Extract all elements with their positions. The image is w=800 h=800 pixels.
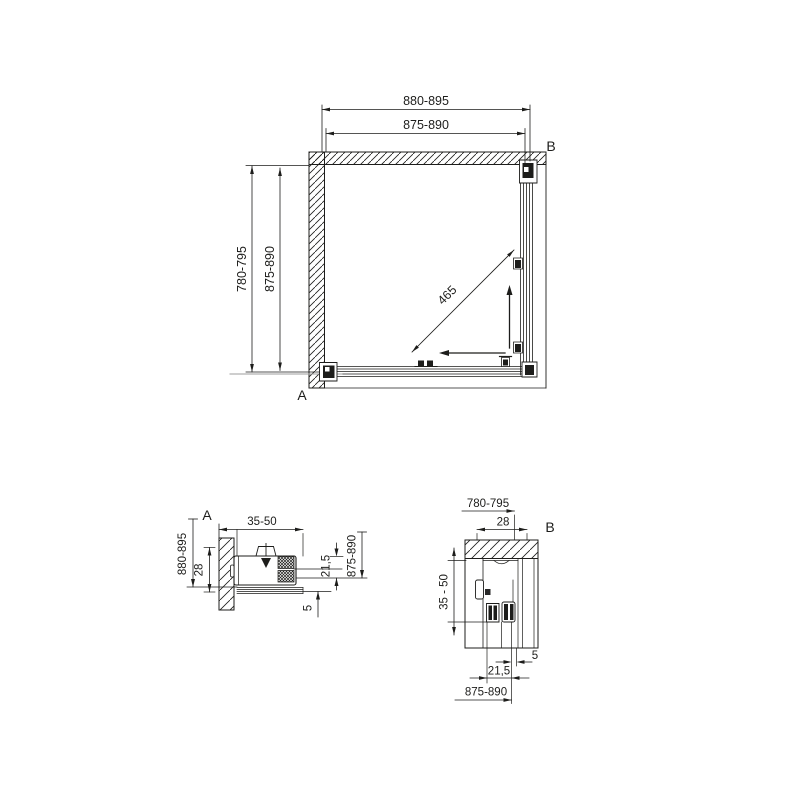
motion-arrow-left-head: [439, 350, 449, 356]
seal-block-lower: [278, 571, 294, 583]
wall-bracket-b: [520, 160, 538, 183]
dim-plan-depth-inner: 875-890: [263, 246, 277, 292]
bottom-door-track: [337, 367, 522, 377]
plan-walls: [309, 152, 546, 388]
plan-view: 880-895 875-890 780-795 875-890 465 A B: [230, 94, 556, 403]
detail-b-wall: [465, 540, 538, 559]
motion-arrow-up-head: [507, 285, 513, 295]
dim-detail-b-left: 35 - 50: [439, 574, 451, 610]
seal-block-upper: [278, 557, 294, 569]
plan-dimensions: [246, 105, 530, 372]
dim-detail-b-top-inner: 28: [497, 517, 510, 529]
dim-plan-diagonal: 465: [435, 283, 460, 308]
label-detail-a: A: [202, 507, 212, 523]
corner-connector: [522, 362, 537, 377]
dim-plan-depth-outer: 780-795: [235, 246, 249, 292]
detail-a-view: A: [177, 507, 367, 617]
detail-b-knob: [476, 580, 491, 599]
dim-detail-a-bottom: 5: [303, 605, 315, 611]
dim-detail-b-bottom-outer: 875-890: [465, 687, 507, 699]
label-detail-b: B: [545, 519, 554, 535]
dim-detail-a-left-inner: 28: [194, 564, 206, 577]
dim-detail-a-right-inner: 21,5: [321, 555, 333, 577]
dim-plan-width-outer: 880-895: [403, 94, 449, 108]
label-plan-b: B: [546, 138, 555, 154]
dim-detail-a-right-outer: 875-890: [347, 535, 359, 577]
dim-detail-b-top-outer: 780-795: [467, 498, 509, 510]
top-wall-hatched: [309, 152, 546, 165]
door-rollers-right: [514, 258, 523, 353]
dim-plan-width-inner: 875-890: [403, 118, 449, 132]
door-rollers-bottom: [415, 357, 512, 367]
left-wall-hatched: [309, 152, 325, 388]
dim-detail-b-right-gap: 5: [532, 650, 538, 662]
label-plan-a: A: [297, 387, 307, 403]
shower-enclosure-drawing: 880-895 875-890 780-795 875-890 465 A B …: [0, 0, 800, 800]
dim-detail-b-bottom-inner: 21,5: [488, 666, 510, 678]
detail-b-rollers: [487, 602, 516, 648]
dim-detail-a-top: 35-50: [247, 516, 276, 528]
dim-detail-a-left-outer: 880-895: [177, 533, 189, 575]
detail-b-view: B: [439, 498, 555, 704]
technical-drawing-page: 880-895 875-890 780-795 875-890 465 A B …: [0, 0, 800, 800]
